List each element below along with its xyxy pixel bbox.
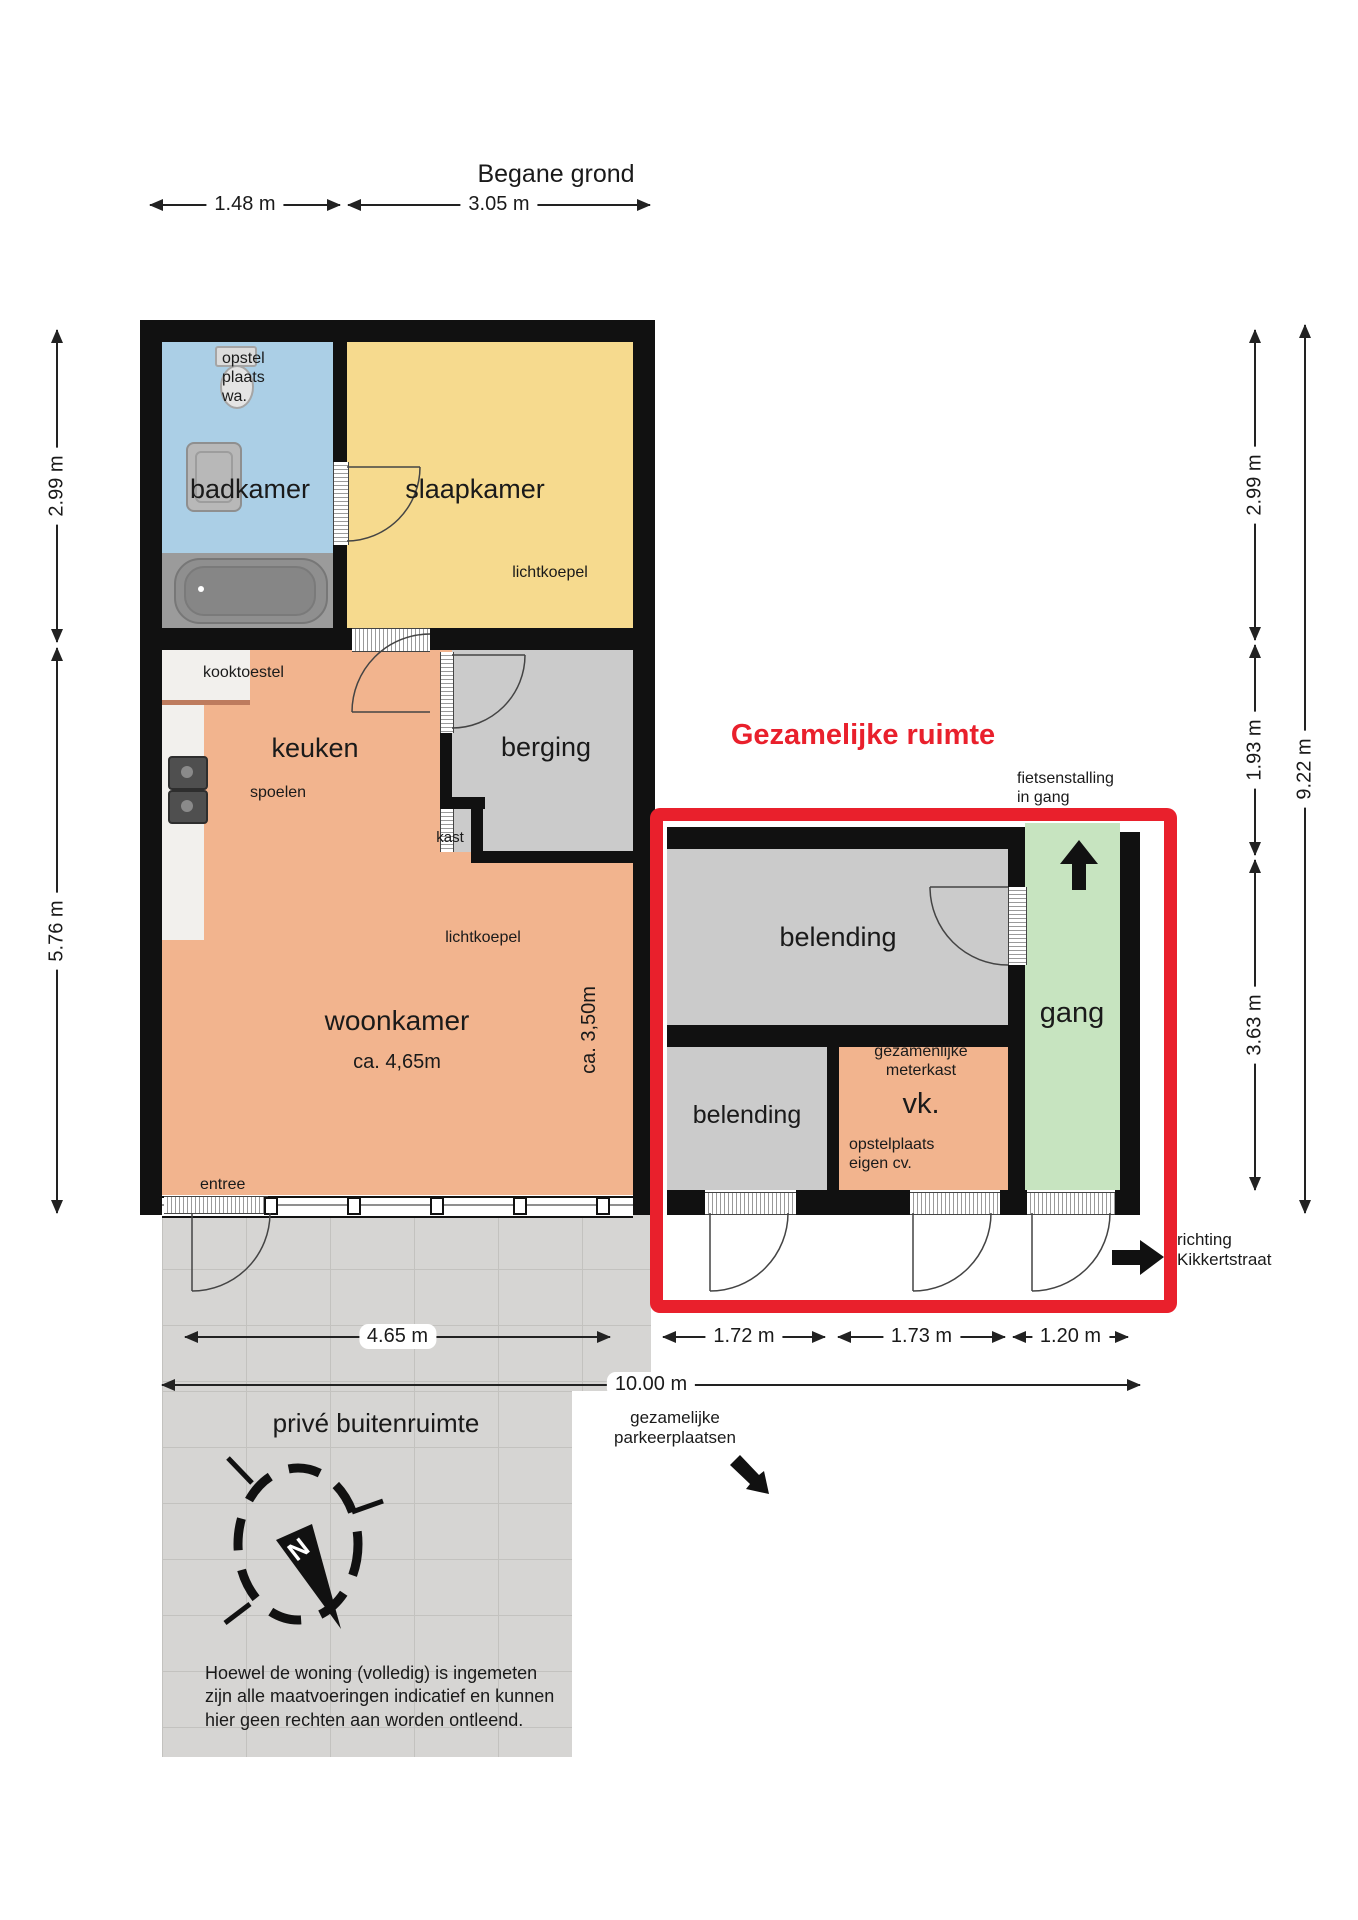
note-kast: kast xyxy=(425,829,475,847)
window-mullion xyxy=(264,1197,278,1215)
note-lichtkoepel-woonkamer: lichtkoepel xyxy=(403,929,563,948)
room-label-badkamer: badkamer xyxy=(150,474,350,506)
wall xyxy=(140,320,655,342)
note-parkeerplaatsen: gezamelijke parkeerplaatsen xyxy=(590,1408,760,1448)
patio-label: privé buitenruimte xyxy=(256,1408,496,1439)
door-berging xyxy=(440,652,454,733)
note-woonkamer-diepte: ca. 3,50m xyxy=(578,986,602,1074)
wall xyxy=(333,545,347,628)
note-kooktoestel: kooktoestel xyxy=(203,664,284,683)
wall xyxy=(333,342,347,462)
note-woonkamer-breedte: ca. 4,65m xyxy=(317,1051,477,1075)
page-title: Begane grond xyxy=(431,160,681,190)
window-mullion xyxy=(347,1197,361,1215)
door-entree xyxy=(164,1196,268,1214)
floorplan-canvas: Begane grond xyxy=(0,0,1358,1920)
window-mullion xyxy=(513,1197,527,1215)
parking-arrow-icon xyxy=(730,1455,769,1494)
shared-space-outline xyxy=(650,808,1177,1313)
wall xyxy=(440,797,485,809)
window-mullion xyxy=(596,1197,610,1215)
room-label-woonkamer: woonkamer xyxy=(277,1004,517,1037)
wall xyxy=(471,851,633,863)
sink-icon xyxy=(168,790,208,824)
window-mullion xyxy=(430,1197,444,1215)
wall xyxy=(140,320,162,1215)
patio-tiles-upper xyxy=(162,1213,651,1391)
room-label-berging: berging xyxy=(456,732,636,764)
sink-icon xyxy=(168,756,208,790)
note-richting-kikkertstraat: richting Kikkertstraat xyxy=(1177,1230,1271,1270)
note-opstelplaats-wasmachine: opstel plaats wa. xyxy=(222,350,265,407)
wall xyxy=(440,733,452,800)
note-spoelen: spoelen xyxy=(250,784,306,803)
counter-divider xyxy=(162,700,250,705)
note-entree: entree xyxy=(200,1176,245,1195)
disclaimer-text: Hoewel de woning (volledig) is ingemeten… xyxy=(205,1662,554,1732)
door-slaapkamer-keuken xyxy=(352,628,430,652)
wall xyxy=(140,628,352,650)
note-fietsenstalling: fietsenstalling in gang xyxy=(1017,770,1114,808)
room-label-keuken: keuken xyxy=(235,733,395,765)
note-lichtkoepel-slaapkamer: lichtkoepel xyxy=(470,564,630,583)
wall xyxy=(430,628,655,650)
shared-space-heading: Gezamelijke ruimte xyxy=(698,718,1028,752)
bathtub-icon xyxy=(174,558,328,624)
room-label-slaapkamer: slaapkamer xyxy=(355,474,595,506)
